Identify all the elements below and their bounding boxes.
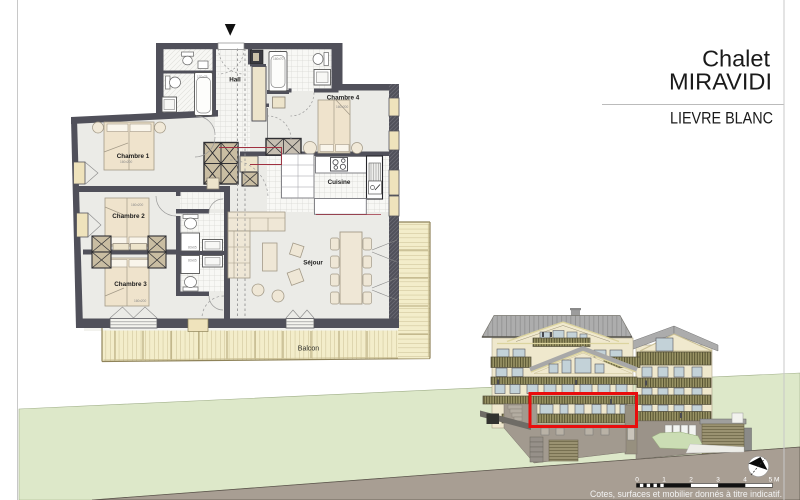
svg-text:170x75: 170x75 bbox=[197, 75, 208, 79]
svg-text:0: 0 bbox=[635, 477, 639, 484]
svg-text:Chambre 1: Chambre 1 bbox=[117, 153, 150, 160]
svg-text:Chambre 2: Chambre 2 bbox=[112, 213, 145, 220]
svg-text:Séjour: Séjour bbox=[303, 260, 323, 267]
svg-text:MIRAVIDI: MIRAVIDI bbox=[669, 69, 772, 95]
svg-text:1: 1 bbox=[662, 477, 666, 484]
svg-text:Balcon: Balcon bbox=[298, 346, 320, 353]
svg-text:LIEVRE BLANC: LIEVRE BLANC bbox=[670, 109, 773, 128]
svg-text:2: 2 bbox=[689, 477, 693, 484]
svg-text:Cotes, surfaces et mobilier do: Cotes, surfaces et mobilier donnés à tit… bbox=[590, 489, 782, 500]
svg-text:160x200: 160x200 bbox=[336, 105, 348, 109]
svg-text:5 M: 5 M bbox=[769, 477, 780, 484]
svg-text:Hall: Hall bbox=[229, 77, 241, 84]
svg-text:160x200: 160x200 bbox=[120, 160, 132, 164]
svg-text:Chambre 4: Chambre 4 bbox=[327, 95, 360, 102]
svg-text:Cuisine: Cuisine bbox=[328, 179, 351, 186]
svg-text:3: 3 bbox=[716, 477, 720, 484]
svg-text:80x65: 80x65 bbox=[188, 259, 197, 263]
svg-text:160x200: 160x200 bbox=[131, 203, 143, 207]
svg-text:160x200: 160x200 bbox=[134, 299, 146, 303]
svg-text:Chambre 3: Chambre 3 bbox=[114, 281, 147, 288]
svg-text:160x70: 160x70 bbox=[273, 57, 284, 61]
svg-text:4: 4 bbox=[743, 477, 747, 484]
svg-text:80x65: 80x65 bbox=[188, 246, 197, 250]
